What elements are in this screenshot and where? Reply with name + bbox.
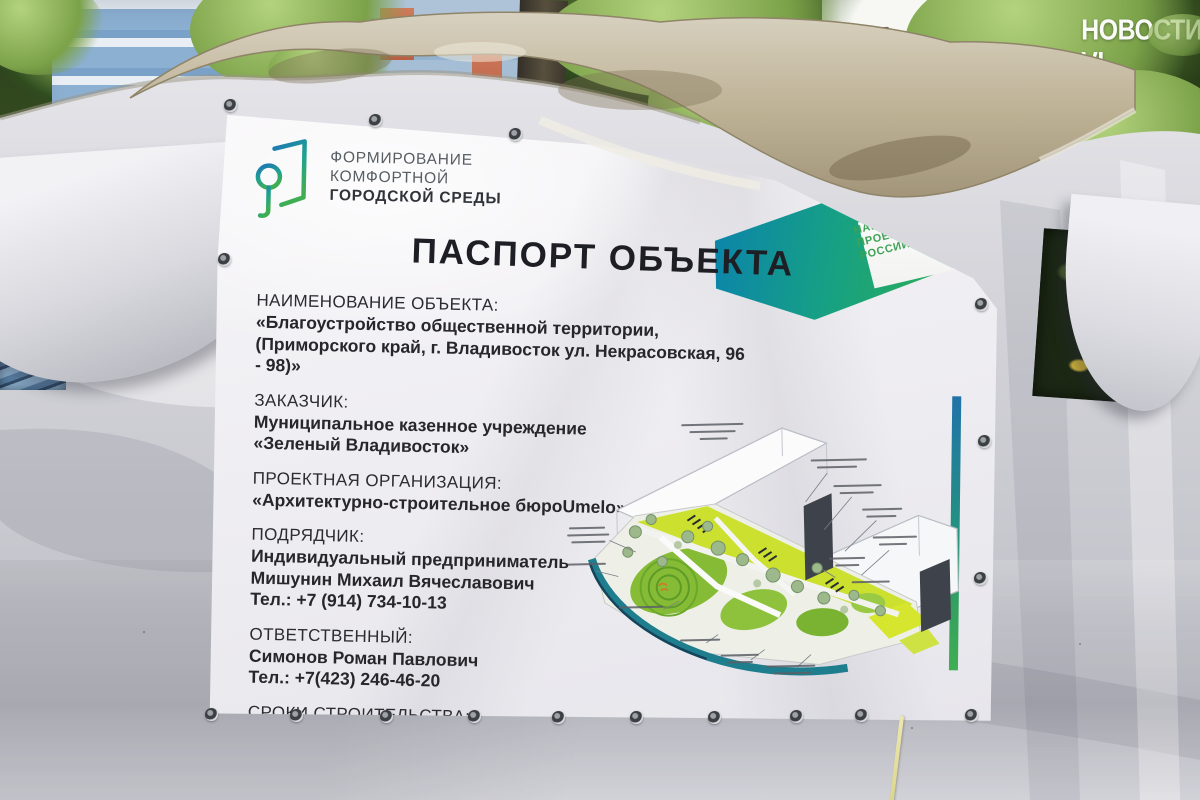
section-object-name: НАИМЕНОВАНИЕ ОБЪЕКТА: «Благоустройство о… (255, 290, 747, 387)
grommet (708, 711, 721, 724)
grommet (380, 710, 393, 723)
grommet (205, 708, 218, 721)
grommet (369, 114, 382, 127)
grommet (855, 709, 868, 722)
grommet (509, 128, 522, 141)
logo-line-3: ГОРОДСКОЙ СРЕДЫ (329, 186, 501, 209)
grommet (975, 298, 988, 311)
program-logo-text: ФОРМИРОВАНИЕ КОМФОРТНОЙ ГОРОДСКОЙ СРЕДЫ (329, 136, 503, 226)
grommet (468, 710, 481, 723)
grommet (978, 435, 991, 448)
grommet (552, 711, 565, 724)
grommet (965, 709, 978, 722)
grommet (224, 99, 237, 112)
section-line: (Приморского край, г. Владивосток ул. Не… (255, 333, 746, 386)
comfort-environment-logo-icon (251, 134, 317, 219)
grommet (290, 709, 303, 722)
grommet (974, 572, 987, 585)
grommet (630, 711, 643, 724)
grommet (790, 710, 803, 723)
grommet (218, 253, 231, 266)
program-logo: ФОРМИРОВАНИЕ КОМФОРТНОЙ ГОРОДСКОЙ СРЕДЫ (251, 134, 583, 227)
site-plan-illustration (564, 402, 969, 693)
